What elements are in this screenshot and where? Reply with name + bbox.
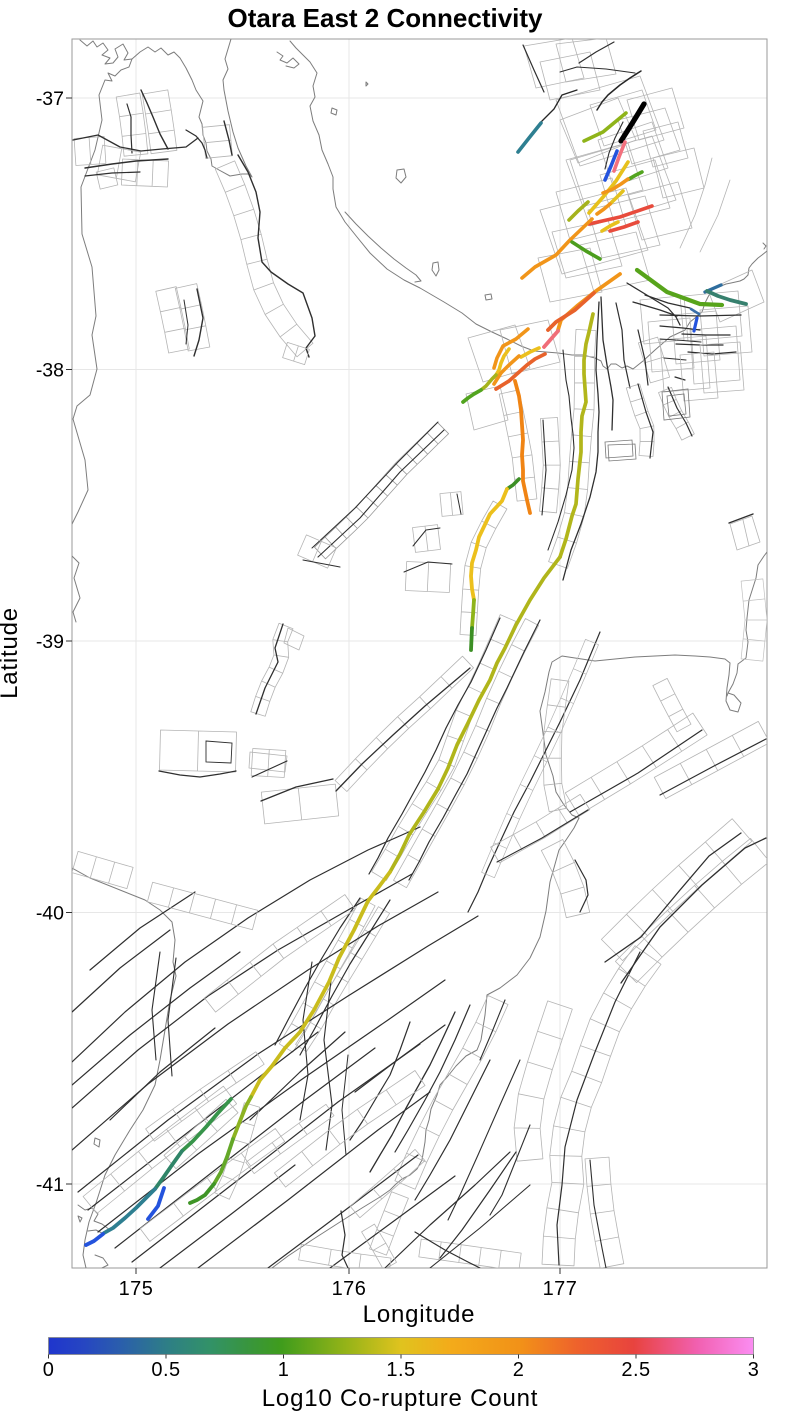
svg-text:Otara East 2 Connectivity: Otara East 2 Connectivity	[228, 3, 544, 33]
svg-text:177: 177	[543, 1278, 578, 1300]
svg-text:-41: -41	[36, 1174, 64, 1196]
svg-text:175: 175	[119, 1278, 154, 1300]
svg-text:176: 176	[332, 1278, 367, 1300]
svg-text:Longitude: Longitude	[363, 1301, 476, 1328]
svg-text:0.5: 0.5	[151, 1359, 180, 1381]
svg-text:2.5: 2.5	[621, 1359, 650, 1381]
svg-text:Log10 Co-rupture Count: Log10 Co-rupture Count	[262, 1385, 538, 1412]
svg-text:-39: -39	[36, 631, 64, 653]
svg-text:3: 3	[748, 1359, 760, 1381]
svg-text:-38: -38	[36, 360, 64, 382]
svg-text:1.5: 1.5	[386, 1359, 415, 1381]
svg-text:0: 0	[43, 1359, 55, 1381]
svg-text:2: 2	[513, 1359, 525, 1381]
svg-text:1: 1	[278, 1359, 290, 1381]
svg-text:-37: -37	[36, 88, 64, 110]
svg-text:-40: -40	[36, 903, 64, 925]
svg-text:Latitude: Latitude	[0, 607, 23, 699]
